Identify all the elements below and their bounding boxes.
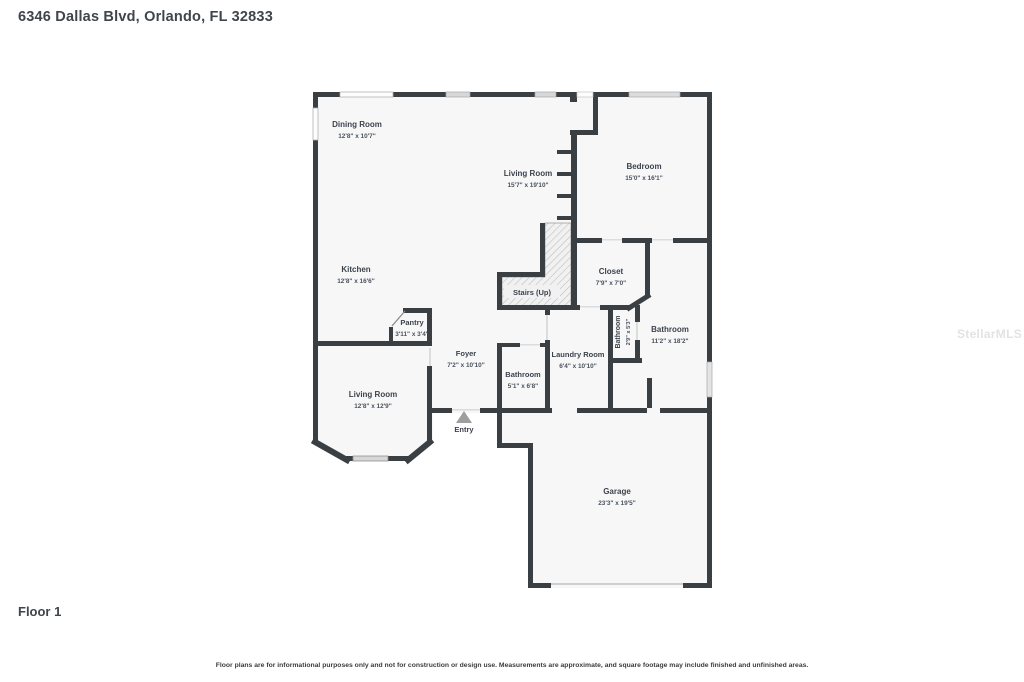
floor-plan-page: 6346 Dallas Blvd, Orlando, FL 32833 — [0, 0, 1024, 682]
room-dims-foyer: 7'2" x 10'10" — [447, 362, 485, 369]
room-dims-bath-vertical: 2'9" x 5'3" — [626, 318, 632, 345]
room-dims-closet: 7'9" x 7'0" — [596, 280, 626, 287]
room-label-stairs: Stairs (Up) — [513, 288, 551, 297]
floor-label: Floor 1 — [18, 604, 61, 619]
room-dims-bath-main: 11'2" x 18'2" — [651, 338, 688, 345]
room-label-bedroom: Bedroom — [626, 162, 661, 171]
room-label-dining: Dining Room — [332, 120, 382, 129]
room-label-kitchen: Kitchen — [341, 265, 370, 274]
disclaimer-text: Floor plans are for informational purpos… — [0, 662, 1024, 669]
room-label-garage: Garage — [603, 487, 631, 496]
room-label-bath-vertical: Bathroom — [615, 315, 622, 348]
room-label-foyer: Foyer — [456, 349, 477, 358]
room-dims-laundry: 6'4" x 10'10" — [559, 363, 597, 370]
room-dims-dining: 12'8" x 10'7" — [338, 133, 376, 140]
room-dims-pantry: 3'11" x 3'4" — [395, 331, 429, 338]
room-label-living-bottom: Living Room — [349, 390, 397, 399]
room-dims-garage: 23'3" x 19'5" — [598, 500, 636, 507]
room-label-bath-hall: Bathroom — [505, 370, 541, 379]
room-label-laundry: Laundry Room — [552, 350, 605, 359]
room-dims-bedroom: 15'0" x 16'1" — [625, 175, 663, 182]
room-label-pantry: Pantry — [400, 318, 424, 327]
watermark: StellarMLS — [957, 327, 1022, 341]
room-label-entry: Entry — [454, 425, 474, 434]
room-dims-living-top: 15'7" x 19'10" — [507, 182, 548, 189]
room-label-living-top: Living Room — [504, 169, 552, 178]
room-dims-bath-hall: 5'1" x 6'8" — [508, 383, 538, 390]
room-label-bath-main: Bathroom — [651, 325, 689, 334]
floor-plan: Dining Room 12'8" x 10'7" Living Room 15… — [0, 0, 1024, 682]
room-dims-living-bottom: 12'8" x 12'9" — [354, 403, 392, 410]
room-label-closet: Closet — [599, 267, 624, 276]
room-dims-kitchen: 12'8" x 16'6" — [337, 278, 375, 285]
